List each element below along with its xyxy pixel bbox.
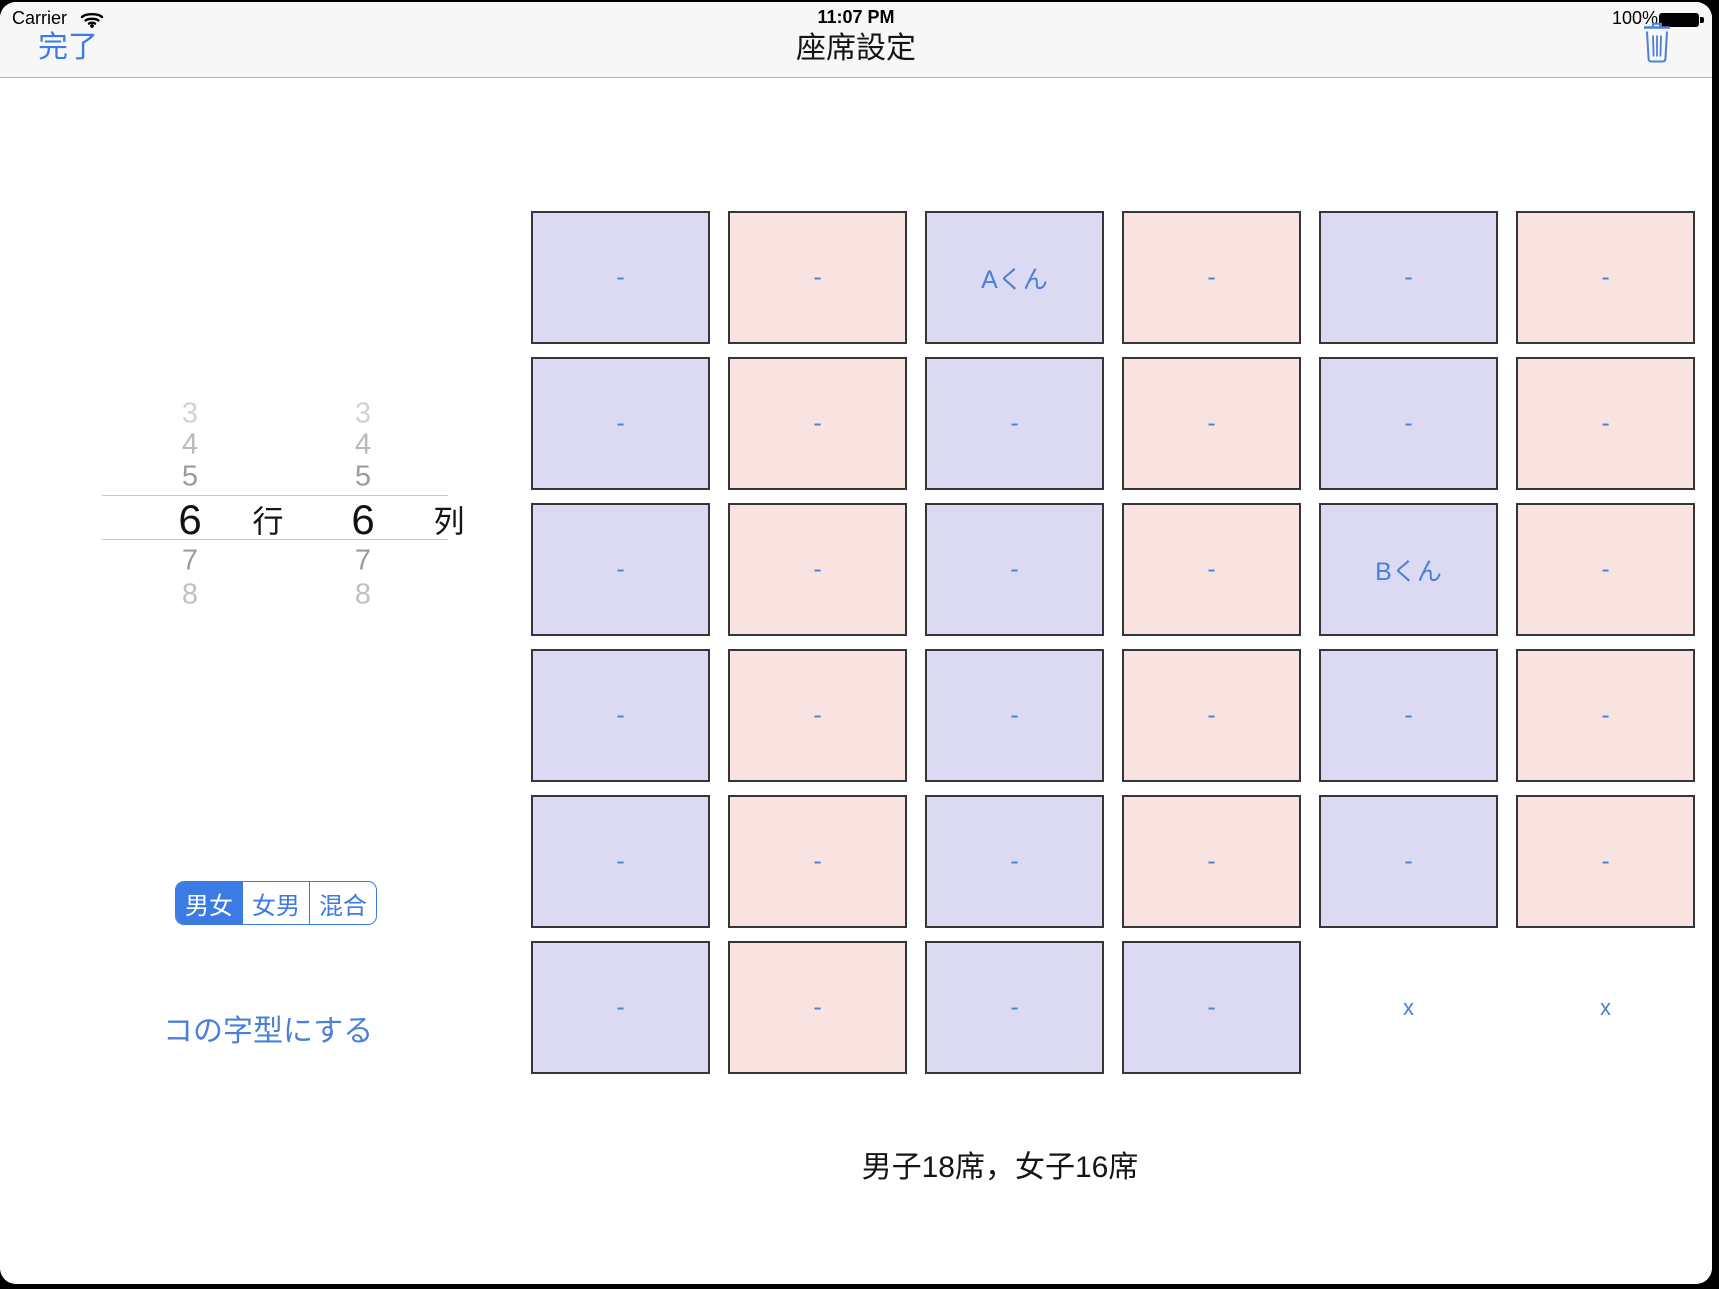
seat-count-summary: 男子18席，女子16席 (640, 1142, 1360, 1186)
app-screen: Carrier 11:07 PM 100% 完了 座席設定 (0, 2, 1712, 1284)
u-shape-button[interactable]: コの字型にする (163, 1006, 373, 1050)
seat[interactable]: - (531, 941, 710, 1074)
picker-option: 3 (318, 398, 408, 431)
picker-option: 5 (145, 461, 235, 494)
seat[interactable]: - (1122, 795, 1301, 928)
seat[interactable]: Bくん (1319, 503, 1498, 636)
navigation-bar: Carrier 11:07 PM 100% 完了 座席設定 (0, 2, 1712, 78)
seat-removed-marker[interactable]: x (1516, 941, 1695, 1074)
seat[interactable]: - (1319, 357, 1498, 490)
seat[interactable]: - (1319, 649, 1498, 782)
seat[interactable]: - (531, 503, 710, 636)
seat-removed-marker[interactable]: x (1319, 941, 1498, 1074)
page-title: 座席設定 (0, 23, 1712, 67)
picker-option: 3 (145, 398, 235, 431)
seat[interactable]: - (1516, 357, 1695, 490)
device-frame: Carrier 11:07 PM 100% 完了 座席設定 (0, 0, 1719, 1289)
picker-option: 8 (145, 579, 235, 612)
seat[interactable]: - (728, 649, 907, 782)
seat[interactable]: - (728, 795, 907, 928)
picker-option: 5 (318, 461, 408, 494)
seat[interactable]: - (1122, 503, 1301, 636)
seat[interactable]: - (1122, 649, 1301, 782)
seat[interactable]: - (1319, 211, 1498, 344)
picker-option: 7 (145, 545, 235, 578)
seat[interactable]: - (1319, 795, 1498, 928)
trash-button[interactable] (1639, 22, 1675, 64)
row-unit-label: 行 (253, 497, 284, 542)
seat[interactable]: - (728, 357, 907, 490)
picker-option: 4 (318, 429, 408, 462)
seat[interactable]: - (531, 211, 710, 344)
seat[interactable]: - (728, 211, 907, 344)
seat[interactable]: - (728, 941, 907, 1074)
seat[interactable]: - (1516, 211, 1695, 344)
picker-option: 8 (318, 579, 408, 612)
seat[interactable]: Aくん (925, 211, 1104, 344)
seat[interactable]: - (1516, 649, 1695, 782)
seat-grid: --Aくん-------------Bくん-----------------xx (531, 211, 1695, 1074)
picker-option: 4 (145, 429, 235, 462)
picker-selected-value: 6 (145, 496, 235, 544)
gender-pattern-segmented-control: 男女女男混合 (175, 881, 377, 925)
seat[interactable]: - (1516, 795, 1695, 928)
seat[interactable]: - (728, 503, 907, 636)
segment-option[interactable]: 混合 (309, 882, 376, 924)
seat[interactable]: - (925, 941, 1104, 1074)
seat[interactable]: - (531, 357, 710, 490)
trash-icon (1639, 22, 1675, 64)
seat[interactable]: - (1122, 941, 1301, 1074)
segment-option[interactable]: 女男 (242, 882, 309, 924)
picker-option: 7 (318, 545, 408, 578)
seat[interactable]: - (925, 357, 1104, 490)
seat[interactable]: - (531, 649, 710, 782)
seat[interactable]: - (925, 795, 1104, 928)
picker-selected-value: 6 (318, 496, 408, 544)
seat[interactable]: - (1122, 357, 1301, 490)
row-count-wheel[interactable]: 345678 (145, 2, 235, 652)
col-unit-label: 列 (434, 497, 465, 542)
segment-option[interactable]: 男女 (176, 882, 242, 924)
col-count-wheel[interactable]: 345678 (318, 2, 408, 652)
seat[interactable]: - (925, 503, 1104, 636)
seat[interactable]: - (1122, 211, 1301, 344)
seat[interactable]: - (925, 649, 1104, 782)
seat[interactable]: - (1516, 503, 1695, 636)
seat[interactable]: - (531, 795, 710, 928)
